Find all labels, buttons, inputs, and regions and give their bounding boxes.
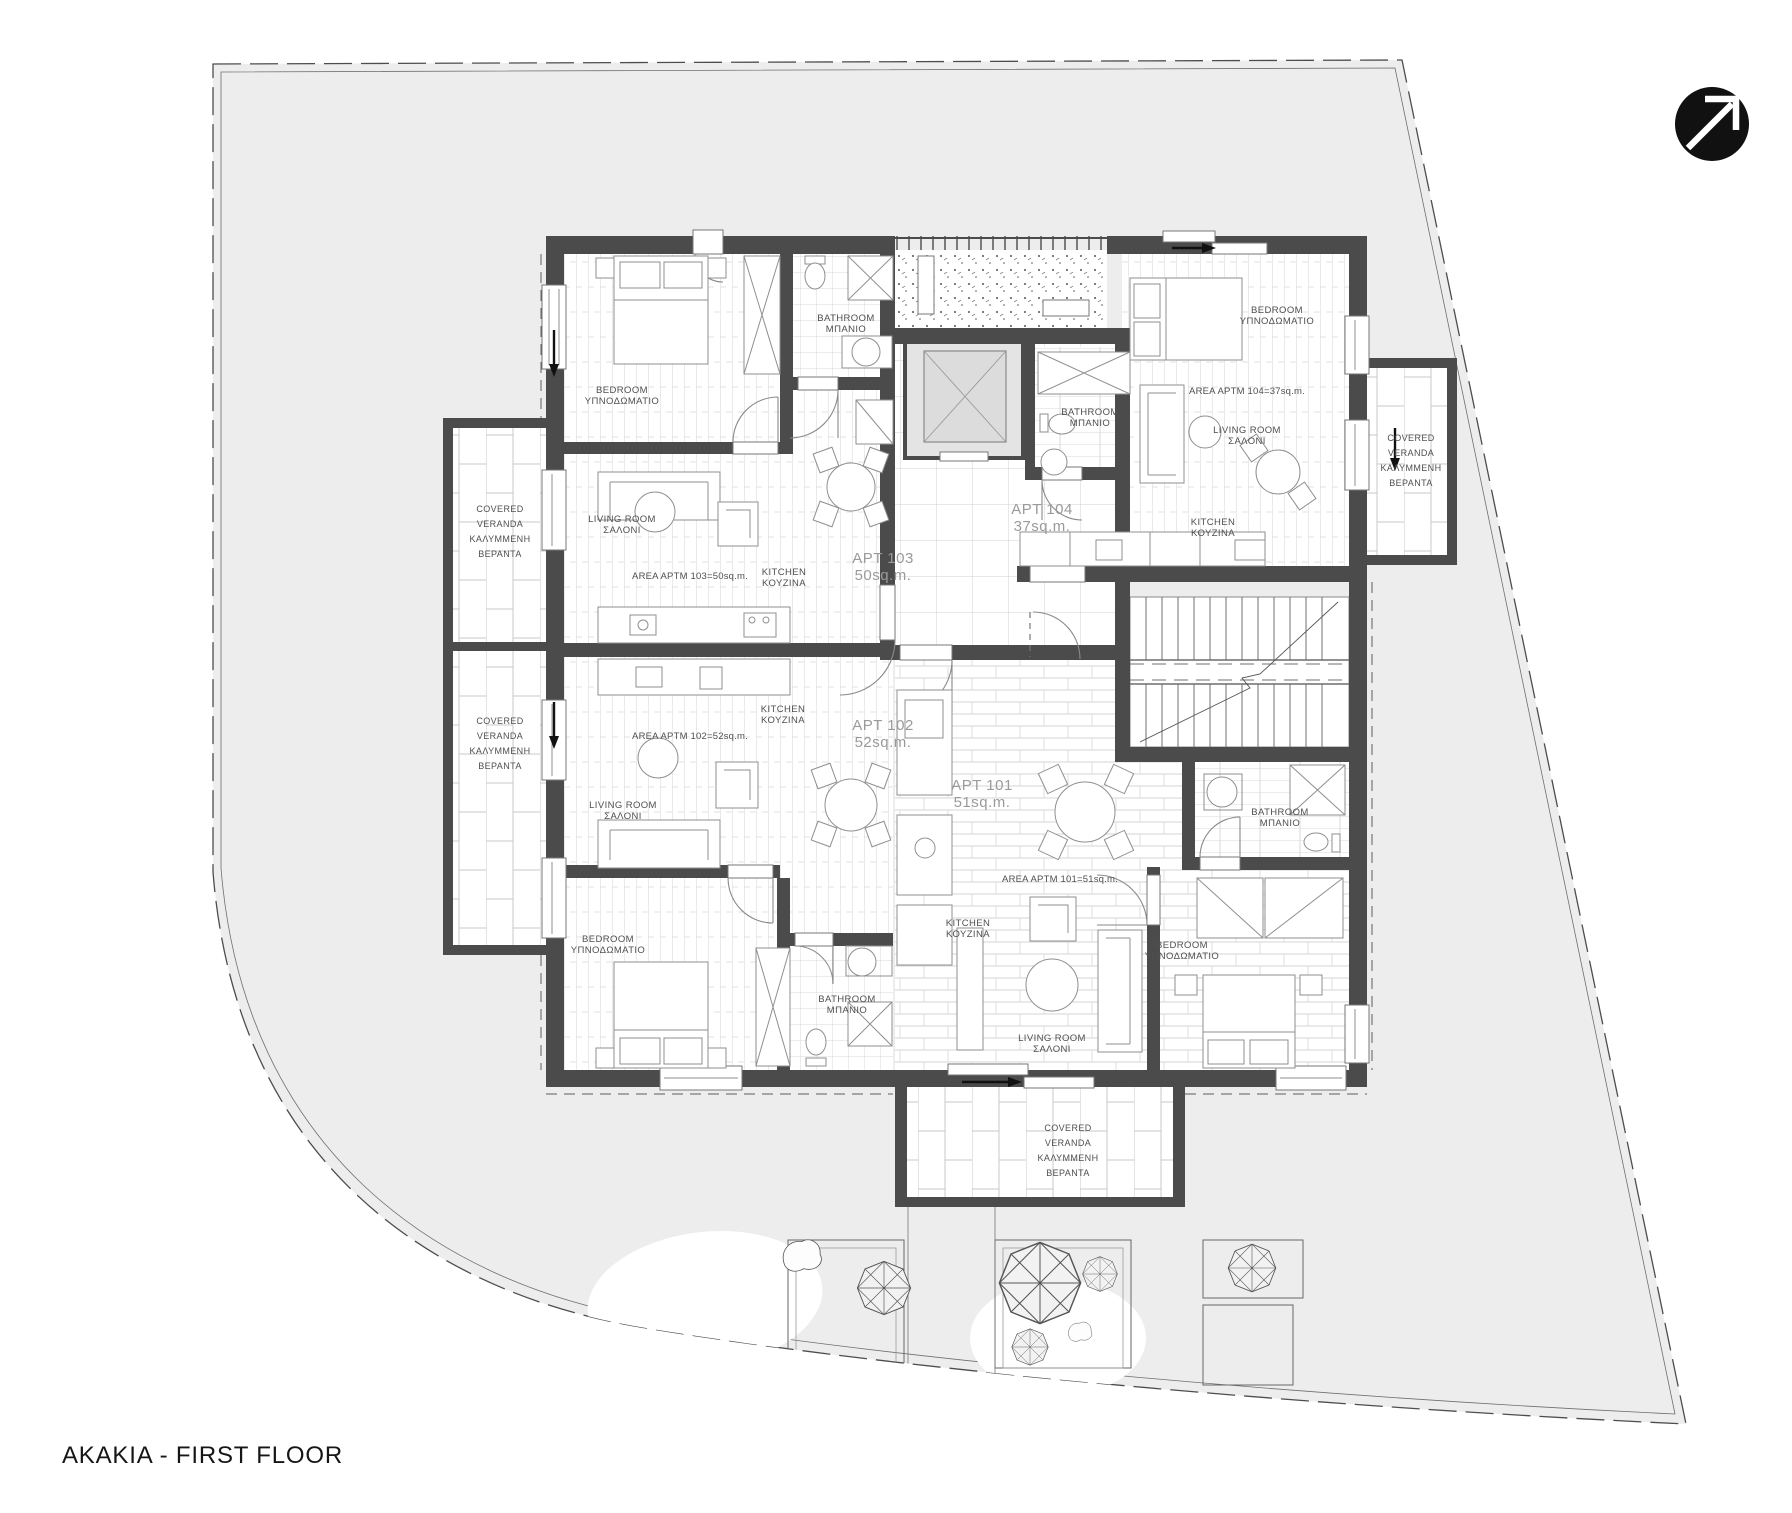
svg-text:BEDROOM: BEDROOM [596,385,648,396]
window [542,858,566,938]
apt104-kitchen-label: KITCHENΚΟΥΖΙΝΑ [1191,517,1236,539]
svg-text:VERANDA: VERANDA [477,519,523,529]
svg-text:ΚΟΥΖΙΝΑ: ΚΟΥΖΙΝΑ [1191,528,1235,539]
svg-text:COVERED: COVERED [1387,433,1434,443]
svg-text:ΥΠΝΟΔΩΜΑΤΙΟ: ΥΠΝΟΔΩΜΑΤΙΟ [1145,951,1219,962]
apt103-kitchen-label: KITCHENΚΟΥΖΙΝΑ [762,567,807,589]
svg-text:ΚΑΛΥΜΜΕΝΗ: ΚΑΛΥΜΜΕΝΗ [470,534,531,544]
svg-text:52sq.m.: 52sq.m. [855,734,912,751]
svg-text:ΒΕΡΑΝΤΑ: ΒΕΡΑΝΤΑ [478,761,521,771]
elevator-door [940,452,988,461]
svg-text:VERANDA: VERANDA [477,731,523,741]
svg-text:ΒΕΡΑΝΤΑ: ΒΕΡΑΝΤΑ [1389,478,1432,488]
tree-icon [1228,1244,1276,1292]
apt104-bathroom-label: BATHROOMΜΠΑΝΙΟ [1061,407,1118,429]
apt103-id-label: APT 10350sq.m. [852,550,914,584]
svg-text:BATHROOM: BATHROOM [818,994,875,1005]
svg-text:LIVING ROOM: LIVING ROOM [1018,1033,1086,1044]
window [1345,316,1369,374]
window [1345,420,1369,490]
svg-text:ΚΟΥΖΙΝΑ: ΚΟΥΖΙΝΑ [946,929,990,940]
svg-text:LIVING ROOM: LIVING ROOM [588,514,656,525]
svg-text:APT 103: APT 103 [852,550,914,567]
svg-text:LIVING ROOM: LIVING ROOM [1213,425,1281,436]
tree-icon [1069,1322,1092,1341]
svg-text:KITCHEN: KITCHEN [946,918,991,929]
svg-text:ΣΑΛΟΝΙ: ΣΑΛΟΝΙ [1228,436,1266,447]
svg-text:VERANDA: VERANDA [1045,1138,1091,1148]
svg-text:ΜΠΑΝΙΟ: ΜΠΑΝΙΟ [1260,818,1300,829]
window [1276,1066,1346,1090]
apt104-area-note: AREA APTM 104=37sq.m. [1189,386,1305,397]
apt103-area-note: AREA APTM 103=50sq.m. [632,571,748,582]
tree-icon [783,1240,821,1271]
window [660,1066,742,1090]
apt101-kitchen-label: KITCHENΚΟΥΖΙΝΑ [946,918,991,940]
apt102-id-label: APT 10252sq.m. [852,717,914,751]
svg-text:ΜΠΑΝΙΟ: ΜΠΑΝΙΟ [826,324,866,335]
logo-arrow-icon [1675,87,1749,161]
window [1345,1005,1369,1063]
svg-text:ΚΟΥΖΙΝΑ: ΚΟΥΖΙΝΑ [761,715,805,726]
svg-text:BATHROOM: BATHROOM [1251,807,1308,818]
elevator [905,335,1023,461]
svg-text:ΒΕΡΑΝΤΑ: ΒΕΡΑΝΤΑ [1046,1168,1089,1178]
tree-icon [1083,1257,1118,1292]
sheet-title: AKAKIA - FIRST FLOOR [62,1442,343,1469]
planter [1043,300,1089,316]
svg-text:KITCHEN: KITCHEN [1191,517,1236,528]
svg-text:BATHROOM: BATHROOM [817,313,874,324]
svg-text:COVERED: COVERED [1044,1123,1091,1133]
svg-text:ΣΑΛΟΝΙ: ΣΑΛΟΝΙ [604,811,642,822]
svg-text:APT 102: APT 102 [852,717,914,734]
planter [918,256,934,314]
svg-text:ΣΑΛΟΝΙ: ΣΑΛΟΝΙ [1033,1044,1071,1055]
apt101-area-note: AREA APTM 101=51sq.m. [1002,874,1118,885]
svg-text:APT 104: APT 104 [1011,501,1073,518]
svg-text:37sq.m.: 37sq.m. [1014,518,1071,535]
svg-text:ΚΑΛΥΜΜΕΝΗ: ΚΑΛΥΜΜΕΝΗ [1038,1153,1099,1163]
apt102-bathroom-label: BATHROOMΜΠΑΝΙΟ [818,994,875,1016]
svg-text:VERANDA: VERANDA [1388,448,1434,458]
apt102-area-note: AREA APTM 102=52sq.m. [632,731,748,742]
svg-text:ΜΠΑΝΙΟ: ΜΠΑΝΙΟ [1070,418,1110,429]
svg-text:ΥΠΝΟΔΩΜΑΤΙΟ: ΥΠΝΟΔΩΜΑΤΙΟ [571,945,645,956]
svg-text:BEDROOM: BEDROOM [1251,305,1303,316]
svg-text:50sq.m.: 50sq.m. [855,567,912,584]
tree-icon [1012,1329,1048,1365]
svg-text:ΚΑΛΥΜΜΕΝΗ: ΚΑΛΥΜΜΕΝΗ [1381,463,1442,473]
apt102-kitchen-label: KITCHENΚΟΥΖΙΝΑ [761,704,806,726]
svg-text:COVERED: COVERED [476,716,523,726]
apt101-id-label: APT 10151sq.m. [951,777,1013,811]
svg-text:51sq.m.: 51sq.m. [954,794,1011,811]
svg-text:BEDROOM: BEDROOM [582,934,634,945]
svg-text:ΥΠΝΟΔΩΜΑΤΙΟ: ΥΠΝΟΔΩΜΑΤΙΟ [585,396,659,407]
svg-text:KITCHEN: KITCHEN [761,704,806,715]
svg-text:APT 101: APT 101 [951,777,1013,794]
apt101-bathroom-label: BATHROOMΜΠΑΝΙΟ [1251,807,1308,829]
svg-text:ΚΑΛΥΜΜΕΝΗ: ΚΑΛΥΜΜΕΝΗ [470,746,531,756]
svg-text:ΚΟΥΖΙΝΑ: ΚΟΥΖΙΝΑ [762,578,806,589]
svg-text:ΒΕΡΑΝΤΑ: ΒΕΡΑΝΤΑ [478,549,521,559]
svg-text:ΥΠΝΟΔΩΜΑΤΙΟ: ΥΠΝΟΔΩΜΑΤΙΟ [1240,316,1314,327]
svg-text:ΜΠΑΝΙΟ: ΜΠΑΝΙΟ [827,1005,867,1016]
svg-text:LIVING ROOM: LIVING ROOM [589,800,657,811]
apt103-bathroom-label: BATHROOMΜΠΑΝΙΟ [817,313,874,335]
svg-text:ΣΑΛΟΝΙ: ΣΑΛΟΝΙ [603,525,641,536]
svg-text:KITCHEN: KITCHEN [762,567,807,578]
tree-icon [857,1261,910,1314]
apt104-id-label: APT 10437sq.m. [1011,501,1073,535]
tree-icon [999,1242,1080,1323]
floor-plan-sheet: BEDROOMΥΠΝΟΔΩΜΑΤΙΟ BATHROOMΜΠΑΝΙΟ LIVING… [0,0,1792,1513]
svg-text:COVERED: COVERED [476,504,523,514]
svg-text:BATHROOM: BATHROOM [1061,407,1118,418]
svg-text:BEDROOM: BEDROOM [1156,940,1208,951]
window [542,470,566,550]
